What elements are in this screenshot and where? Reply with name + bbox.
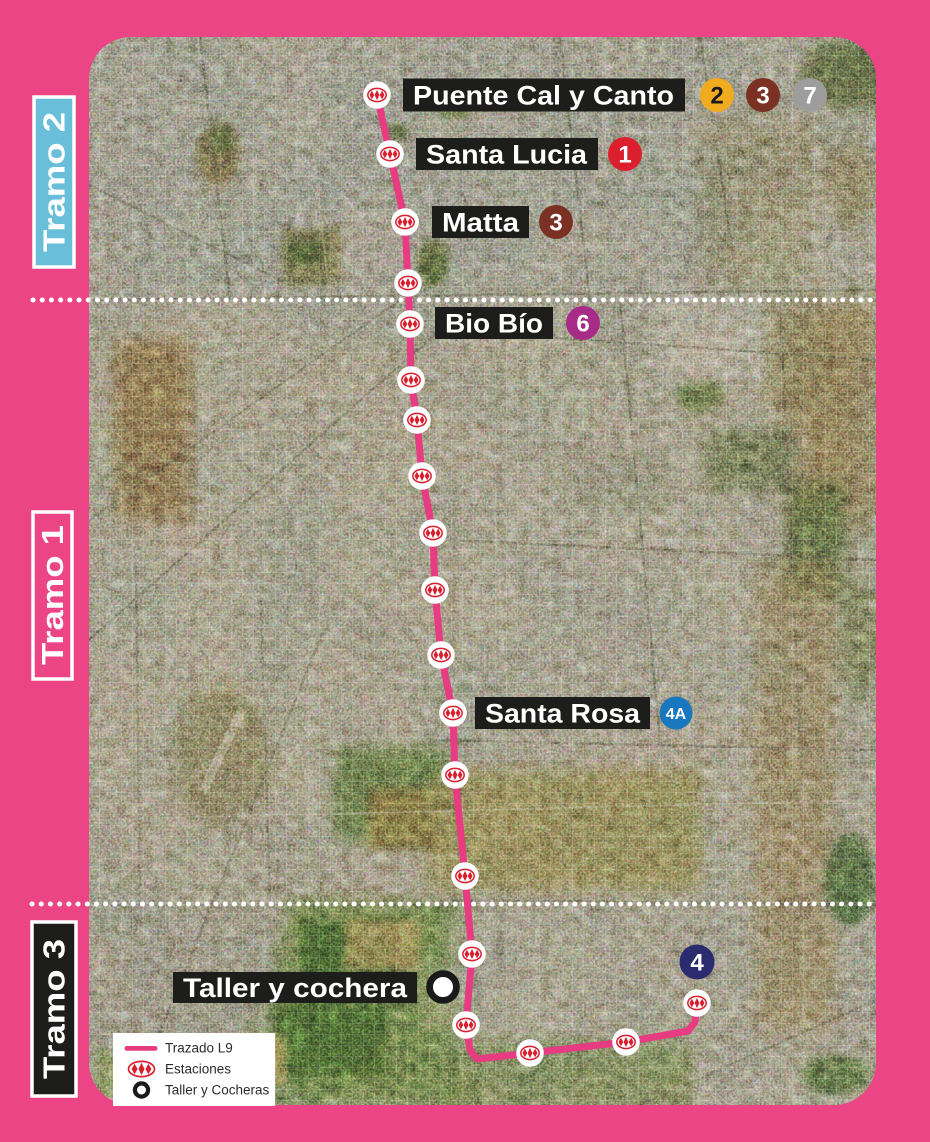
svg-text:Matta: Matta [442, 208, 520, 238]
svg-text:2: 2 [710, 83, 723, 110]
svg-text:4A: 4A [666, 706, 687, 723]
svg-text:3: 3 [549, 210, 562, 237]
svg-text:Taller y cochera: Taller y cochera [183, 973, 408, 1003]
svg-text:Taller y Cocheras: Taller y Cocheras [165, 1083, 270, 1098]
svg-text:Puente Cal y Canto: Puente Cal y Canto [413, 81, 674, 111]
svg-text:Bio Bío: Bio Bío [445, 309, 543, 339]
svg-text:Tramo 2: Tramo 2 [37, 112, 72, 252]
svg-text:Tramo 1: Tramo 1 [35, 525, 70, 665]
svg-text:Santa Rosa: Santa Rosa [485, 699, 641, 729]
svg-text:Santa Lucia: Santa Lucia [426, 140, 588, 170]
svg-text:7: 7 [803, 83, 816, 110]
svg-text:Trazado L9: Trazado L9 [165, 1041, 233, 1056]
svg-text:3: 3 [756, 83, 769, 110]
svg-text:Estaciones: Estaciones [165, 1062, 231, 1077]
svg-text:6: 6 [576, 311, 589, 338]
svg-text:4: 4 [690, 950, 704, 977]
svg-text:Tramo 3: Tramo 3 [37, 939, 72, 1079]
svg-text:1: 1 [618, 142, 631, 169]
